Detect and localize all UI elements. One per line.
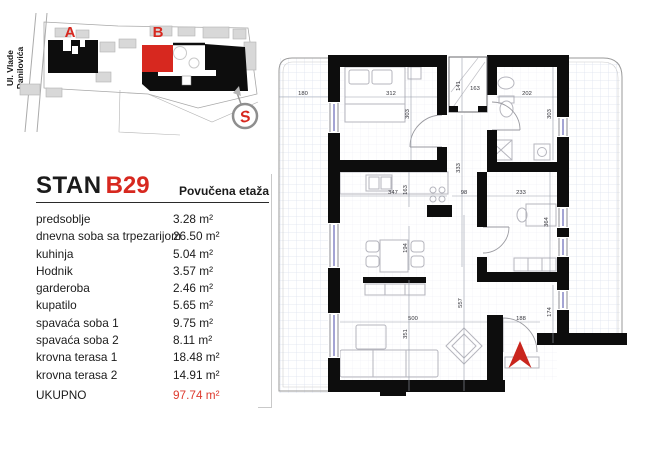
dim-label: 202 (522, 91, 532, 97)
site-map: Ul. Vlade Danilovića A (0, 0, 280, 145)
unit-info-panel: STANB29 Povučena etaža predsoblje3.28 m²… (36, 172, 269, 405)
unit-title-prefix: STAN (36, 172, 102, 199)
room-area: 5.04 m² (173, 247, 213, 261)
dim-label: 303 (405, 109, 411, 119)
window-right-4 (557, 290, 569, 310)
dim-label: 180 (298, 91, 308, 97)
room-area: 14.91 m² (173, 368, 220, 382)
dim-label: 233 (516, 190, 526, 196)
street-label-line2: Danilovića (15, 46, 25, 89)
dim-label: 312 (386, 91, 396, 97)
building-a (48, 40, 98, 73)
room-name: kuhinja (36, 247, 73, 261)
room-area: 26.50 m² (173, 229, 220, 243)
building-a-label: A (65, 24, 76, 41)
dim-label: 174 (547, 306, 553, 316)
dim-label: 163 (470, 86, 480, 92)
room-row: spavaća soba 19.75 m² (36, 316, 269, 333)
dim-label: 347 (388, 190, 398, 196)
dim-label: 194 (403, 242, 409, 252)
roof-terrace-2 (569, 58, 622, 333)
dim-label: 364 (544, 216, 550, 226)
window-left-1 (328, 102, 340, 133)
room-list: predsoblje3.28 m² dnevna soba sa trpezar… (36, 212, 269, 405)
window-right-1 (557, 117, 569, 137)
room-name: dnevna soba sa trpezarijom (36, 229, 181, 243)
floor-plan: 180 312 202 141 163 303 303 347 163 98 3… (255, 30, 650, 430)
window-left-2 (328, 223, 340, 268)
roof-terrace-1 (279, 58, 330, 393)
room-name: Hodnik (36, 264, 73, 278)
room-name: garderoba (36, 281, 90, 295)
room-row: Hodnik3.57 m² (36, 264, 269, 281)
room-row: krovna terasa 214.91 m² (36, 368, 269, 385)
building-b (142, 44, 248, 91)
room-area: 8.11 m² (173, 333, 212, 347)
unit-title-row: STANB29 Povučena etaža (36, 172, 269, 199)
apartment-brochure-page: Ul. Vlade Danilovića A (0, 0, 650, 460)
room-row: spavaća soba 28.11 m² (36, 333, 269, 350)
room-name: krovna terasa 1 (36, 350, 117, 364)
room-area: 3.28 m² (173, 212, 213, 226)
dim-label: 500 (408, 316, 418, 322)
dim-label: 98 (461, 190, 467, 196)
compass-north-icon: S (233, 86, 257, 128)
room-area: 5.65 m² (173, 298, 213, 312)
room-area: 3.57 m² (173, 264, 213, 278)
room-name: kupatilo (36, 298, 77, 312)
window-right-2 (557, 207, 569, 228)
room-row: kuhinja5.04 m² (36, 247, 269, 264)
room-area: 18.48 m² (173, 350, 220, 364)
title-underline (36, 202, 269, 203)
street-label-line1: Ul. Vlade (5, 50, 15, 86)
room-row: predsoblje3.28 m² (36, 212, 269, 229)
total-area: 97.74 m² (173, 388, 220, 402)
room-area: 9.75 m² (173, 316, 213, 330)
dim-label: 188 (516, 316, 526, 322)
total-row: UKUPNO97.74 m² (36, 388, 269, 405)
window-left-3 (328, 313, 340, 358)
room-area: 2.46 m² (173, 281, 213, 295)
room-name: krovna terasa 2 (36, 368, 117, 382)
room-row: kupatilo5.65 m² (36, 298, 269, 315)
dim-label: 303 (547, 109, 553, 119)
room-row: krovna terasa 118.48 m² (36, 350, 269, 367)
dim-label: 163 (403, 185, 409, 195)
dim-label: 351 (403, 329, 409, 339)
building-b-label: B (153, 24, 164, 41)
unit-number: B29 (106, 172, 150, 199)
room-name: spavaća soba 2 (36, 333, 119, 347)
room-name: predsoblje (36, 212, 90, 226)
dim-label: 557 (458, 298, 464, 308)
window-right-3 (557, 237, 569, 257)
unit-b-highlight (142, 45, 173, 72)
dim-label: 333 (456, 163, 462, 173)
room-row: garderoba2.46 m² (36, 281, 269, 298)
shaft (449, 57, 487, 112)
total-label: UKUPNO (36, 388, 86, 402)
room-name: spavaća soba 1 (36, 316, 119, 330)
dim-label: 141 (456, 81, 462, 91)
room-row: dnevna soba sa trpezarijom26.50 m² (36, 229, 269, 246)
